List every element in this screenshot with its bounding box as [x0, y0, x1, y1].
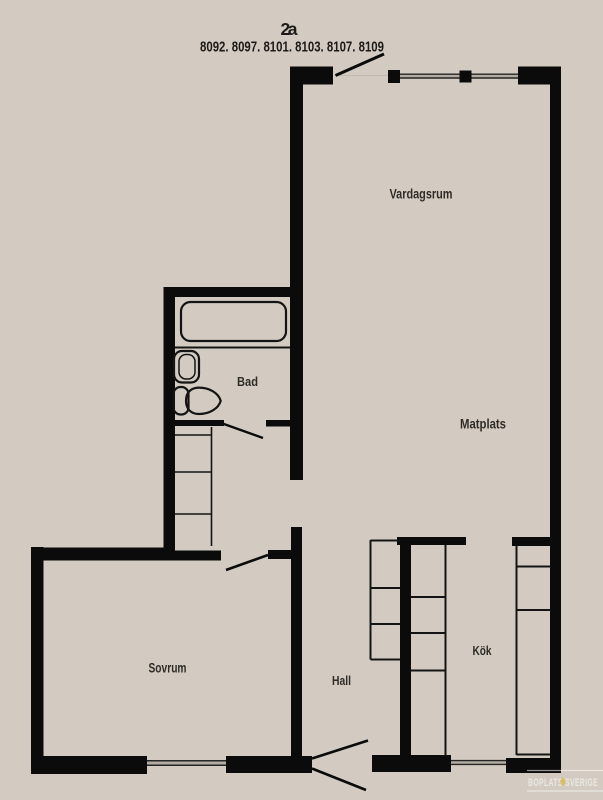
svg-text:8092. 8097. 8101. 8103. 8107.: 8092. 8097. 8101. 8103. 8107. 8109 [200, 39, 384, 56]
svg-text:Kök: Kök [473, 643, 493, 658]
svg-text:Vardagsrum: Vardagsrum [390, 186, 453, 202]
svg-text:Matplats: Matplats [460, 416, 506, 432]
svg-text:2a: 2a [281, 19, 298, 39]
svg-text:Bad: Bad [237, 374, 258, 389]
svg-text:Sovrum: Sovrum [149, 660, 187, 676]
svg-text:Hall: Hall [332, 673, 351, 688]
